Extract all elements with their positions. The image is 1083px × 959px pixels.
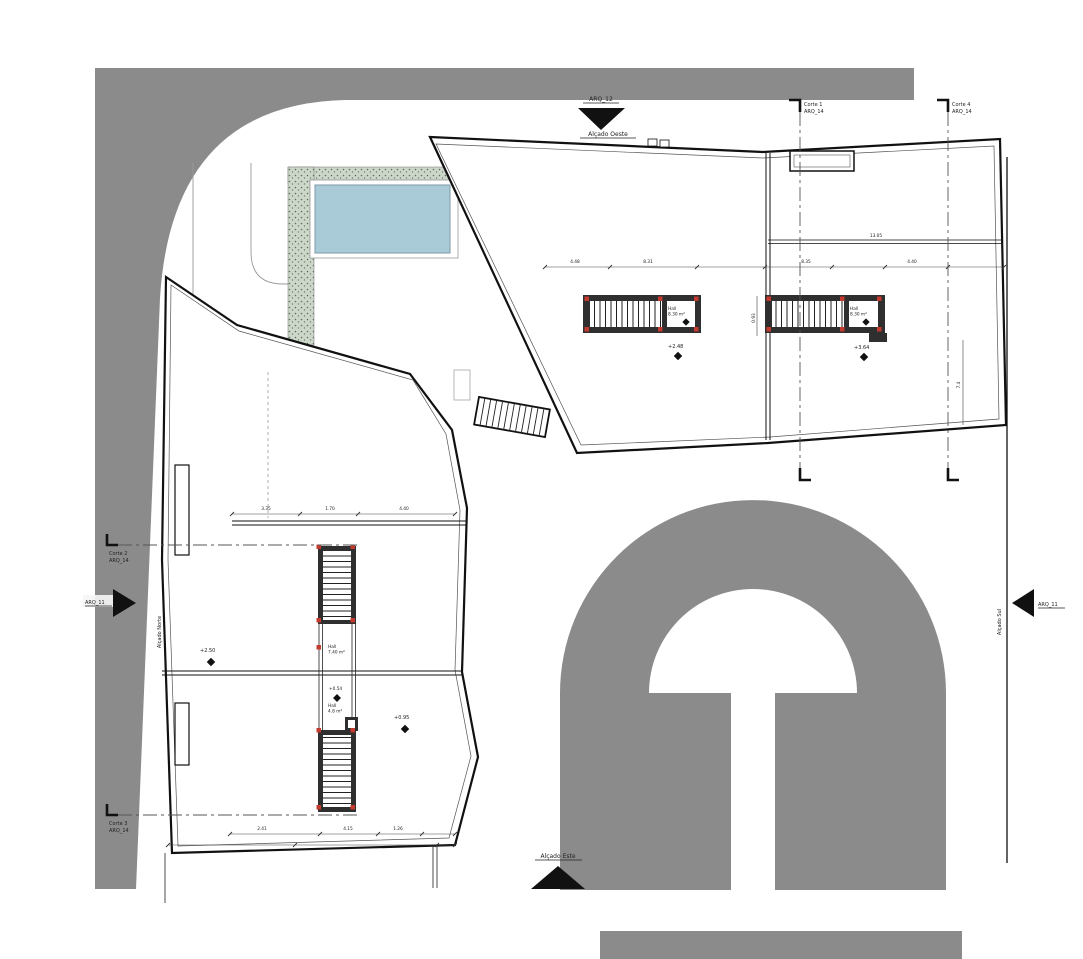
marker-west-sheet: ARQ_12 — [589, 96, 613, 103]
dim-upper-1: 4.48 — [570, 259, 580, 265]
section-sheet-corte3: ARQ_14 — [109, 828, 129, 834]
level-label-stair2: +3.64 — [854, 345, 869, 351]
marker-east-label: Alçado Este — [540, 853, 575, 860]
lower-building: Hall 7.40 m² +0.54 Hall 4.8 m² +2.50 +0.… — [162, 277, 478, 903]
arrow-down-icon — [578, 108, 625, 130]
section-label-corte2: Corte 2 — [109, 551, 127, 557]
level-label-room: +0.95 — [394, 715, 409, 721]
section-label-corte1: Corte 1 — [804, 102, 822, 108]
pool-area — [288, 167, 458, 345]
upper-building: Hall 8.30 m² +2.48 Hall 8.30 m² +3.64 4.… — [430, 137, 1006, 453]
window-1 — [175, 465, 189, 555]
roof-detail-1 — [648, 139, 657, 146]
section-label-corte3: Corte 3 — [109, 821, 127, 827]
room-label-hall2-area: 8.30 m² — [850, 312, 867, 318]
level-label-terrace: +2.50 — [200, 648, 215, 654]
dim-lower-b2: 4.15 — [343, 826, 353, 832]
marker-north-label: Alçado Norte — [157, 616, 163, 648]
dim-lower-t2: 1.70 — [325, 506, 335, 512]
room-label-hall4-area: 4.8 m² — [328, 709, 342, 715]
marker-west-label: Alçado Oeste — [588, 131, 628, 138]
section-label-corte4: Corte 4 — [952, 102, 970, 108]
room-label-hall3-name: Hall — [328, 644, 336, 650]
window-2 — [175, 703, 189, 765]
dim-lower-t3: 4.40 — [399, 506, 409, 512]
dim-upper-v1: 7.4 — [956, 381, 962, 388]
marker-south-sheet: ARQ_11 — [1038, 602, 1058, 608]
dim-upper-2: 8.31 — [643, 259, 653, 265]
marker-south-label: Alçado Sul — [997, 609, 1003, 635]
elevation-marker-west: ARQ_12 Alçado Oeste — [578, 96, 636, 138]
level-label-stair1: +2.48 — [668, 344, 683, 350]
dim-upper-4: 4.40 — [907, 259, 917, 265]
room-label-hall3-area: 7.40 m² — [328, 650, 345, 656]
room-label-hall4-name: Hall — [328, 703, 336, 709]
dim-lower-t1: 3.35 — [261, 506, 271, 512]
site-plan-drawing: Hall 8.30 m² +2.48 Hall 8.30 m² +3.64 4.… — [0, 0, 1083, 959]
road-arch — [560, 500, 946, 890]
dim-lower-b3: 1.26 — [393, 826, 403, 832]
section-sheet-corte2: ARQ_14 — [109, 558, 129, 564]
plan-svg: Hall 8.30 m² +2.48 Hall 8.30 m² +3.64 4.… — [0, 0, 1083, 959]
dim-lower-b1: 2.41 — [257, 826, 267, 832]
room-label-hall1-name: Hall — [668, 306, 676, 312]
section-sheet-corte1: ARQ_14 — [804, 109, 824, 115]
pool-water — [315, 185, 450, 253]
level-label-hall: +0.54 — [329, 686, 342, 692]
roof-detail-2 — [660, 140, 669, 147]
dim-upper-v2: 0.93 — [751, 313, 757, 323]
room-label-hall2-name: Hall — [850, 306, 858, 312]
dim-upper-3: 8.35 — [801, 259, 811, 265]
dim-upper-total: 13.05 — [870, 233, 883, 239]
marker-north-sheet: ARQ_11 — [85, 600, 105, 606]
arrow-left-icon — [1012, 589, 1034, 617]
wall-extension-lines — [165, 845, 437, 903]
section-sheet-corte4: ARQ_14 — [952, 109, 972, 115]
room-label-hall1-area: 8.30 m² — [668, 312, 685, 318]
exterior-stair-grate — [474, 397, 550, 437]
road-bottom-bar — [600, 931, 962, 959]
stair-block-1: Hall 8.30 m² — [583, 295, 701, 333]
